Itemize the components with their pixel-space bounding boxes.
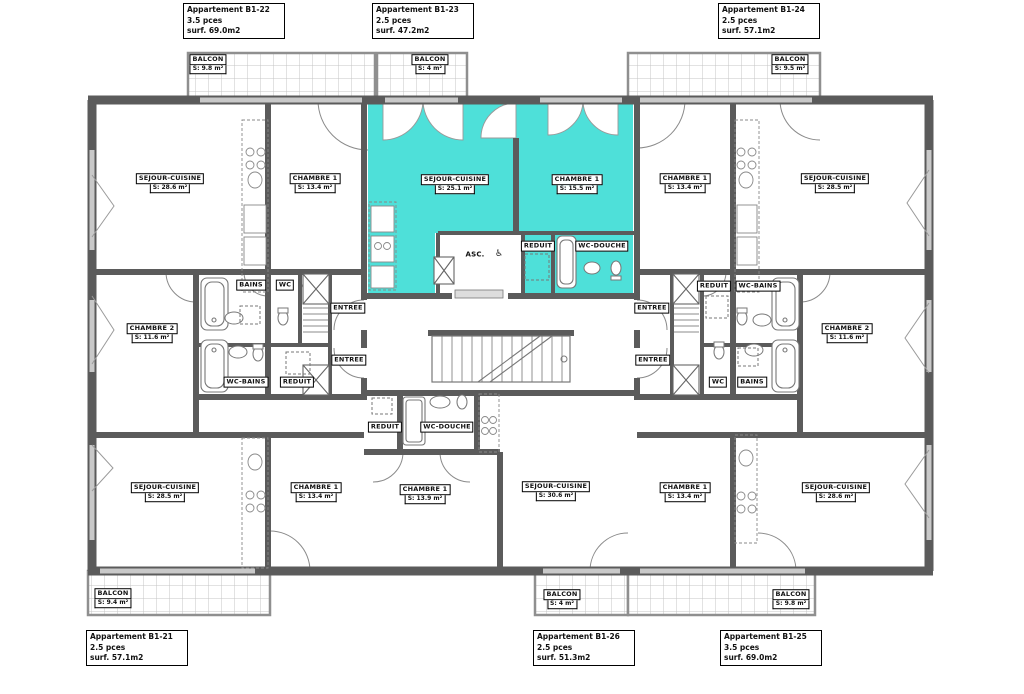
room-label-chambre-b123: CHAMBRE 1S: 15.5 m² [552,174,603,194]
apartment-pieces: 2.5 pces [722,16,816,27]
service-label-reduit-bm: REDUIT [368,422,402,433]
service-label-wc-left: WC [276,280,294,291]
room-label-balcon-tc: BALCONS: 4 m² [411,54,448,74]
room-label-chambre-bl: CHAMBRE 1S: 13.4 m² [291,482,342,502]
service-label-bains-right: BAINS [737,377,767,388]
apartment-name: Appartement B1-25 [724,632,818,643]
room-label-sejour-b123: SEJOUR-CUISINES: 25.1 m² [421,174,489,194]
apartment-name: Appartement B1-24 [722,5,816,16]
room-label-balcon-bl: BALCONS: 9.4 m² [94,588,131,608]
room-label-sejour-bl: SEJOUR-CUISINES: 28.5 m² [131,482,199,502]
service-label-entree-left-top: ENTREE [330,303,365,314]
service-label-wcbains-right: WC-BAINS [736,281,781,292]
apartment-pieces: 3.5 pces [187,16,281,27]
apartment-name: Appartement B1-21 [90,632,184,643]
apartment-surface: surf. 47.2m2 [376,26,470,37]
room-label-sejour-tr: SEJOUR-CUISINES: 28.5 m² [801,173,869,193]
room-label-balcon-tl: BALCONS: 9.8 m² [189,54,226,74]
room-label-balcon-br: BALCONS: 9.8 m² [772,589,809,609]
room-label-sejour-bm: SEJOUR-CUISINES: 30.6 m² [522,481,590,501]
apartment-surface: surf. 51.3m2 [537,653,631,664]
apartment-title-B1-25: Appartement B1-25 3.5 pces surf. 69.0m2 [720,630,822,666]
apartment-pieces: 2.5 pces [376,16,470,27]
service-label-entree-right-top: ENTREE [634,303,669,314]
staircase [432,336,570,382]
room-label-chambre2-right: CHAMBRE 2S: 11.6 m² [822,323,873,343]
service-label-reduit-left: REDUIT [280,377,314,388]
floor-plan-drawing [0,0,1024,694]
apartment-surface: surf. 57.1m2 [722,26,816,37]
room-label-chambre-tl: CHAMBRE 1S: 13.4 m² [290,173,341,193]
room-label-chambre2-left: CHAMBRE 2S: 11.6 m² [127,323,178,343]
wheelchair-icon: ♿ [495,249,503,259]
elevator-door [455,290,503,298]
room-label-chambre-br: CHAMBRE 1S: 13.4 m² [660,482,711,502]
apartment-surface: surf. 69.0m2 [724,653,818,664]
service-label-wcbains-left: WC-BAINS [224,377,269,388]
apartment-pieces: 2.5 pces [90,643,184,654]
apartment-title-B1-21: Appartement B1-21 2.5 pces surf. 57.1m2 [86,630,188,666]
elevator-label: ASC. [463,250,486,259]
apartment-title-B1-26: Appartement B1-26 2.5 pces surf. 51.3m2 [533,630,635,666]
apartment-surface: surf. 69.0m2 [187,26,281,37]
room-label-sejour-tl: SEJOUR-CUISINES: 28.6 m² [136,173,204,193]
apartment-pieces: 3.5 pces [724,643,818,654]
room-label-balcon-tr: BALCONS: 9.5 m² [771,54,808,74]
floor-plan-page: Appartement B1-22 3.5 pces surf. 69.0m2 … [0,0,1024,694]
service-label-reduit-right: REDUIT [697,281,731,292]
room-label-sejour-br: SEJOUR-CUISINES: 28.6 m² [802,482,870,502]
apartment-title-B1-23: Appartement B1-23 2.5 pces surf. 47.2m2 [372,3,474,39]
service-label-entree-left-bottom: ENTREE [331,355,366,366]
room-label-chambre-bm: CHAMBRE 1S: 13.9 m² [400,484,451,504]
room-label-balcon-bm: BALCONS: 4 m² [543,589,580,609]
apartment-name: Appartement B1-26 [537,632,631,643]
apartment-pieces: 2.5 pces [537,643,631,654]
apartment-surface: surf. 57.1m2 [90,653,184,664]
service-label-wcdouche-b123: WC-DOUCHE [575,241,628,252]
room-label-chambre-tr: CHAMBRE 1S: 13.4 m² [660,173,711,193]
service-label-entree-right-bottom: ENTREE [635,355,670,366]
service-label-reduit-b123: REDUIT [521,241,555,252]
apartment-name: Appartement B1-23 [376,5,470,16]
apartment-name: Appartement B1-22 [187,5,281,16]
service-label-wc-right: WC [709,377,727,388]
apartment-title-B1-24: Appartement B1-24 2.5 pces surf. 57.1m2 [718,3,820,39]
service-label-wcdouche-bm: WC-DOUCHE [420,422,473,433]
apartment-title-B1-22: Appartement B1-22 3.5 pces surf. 69.0m2 [183,3,285,39]
service-label-bains-left: BAINS [236,280,266,291]
